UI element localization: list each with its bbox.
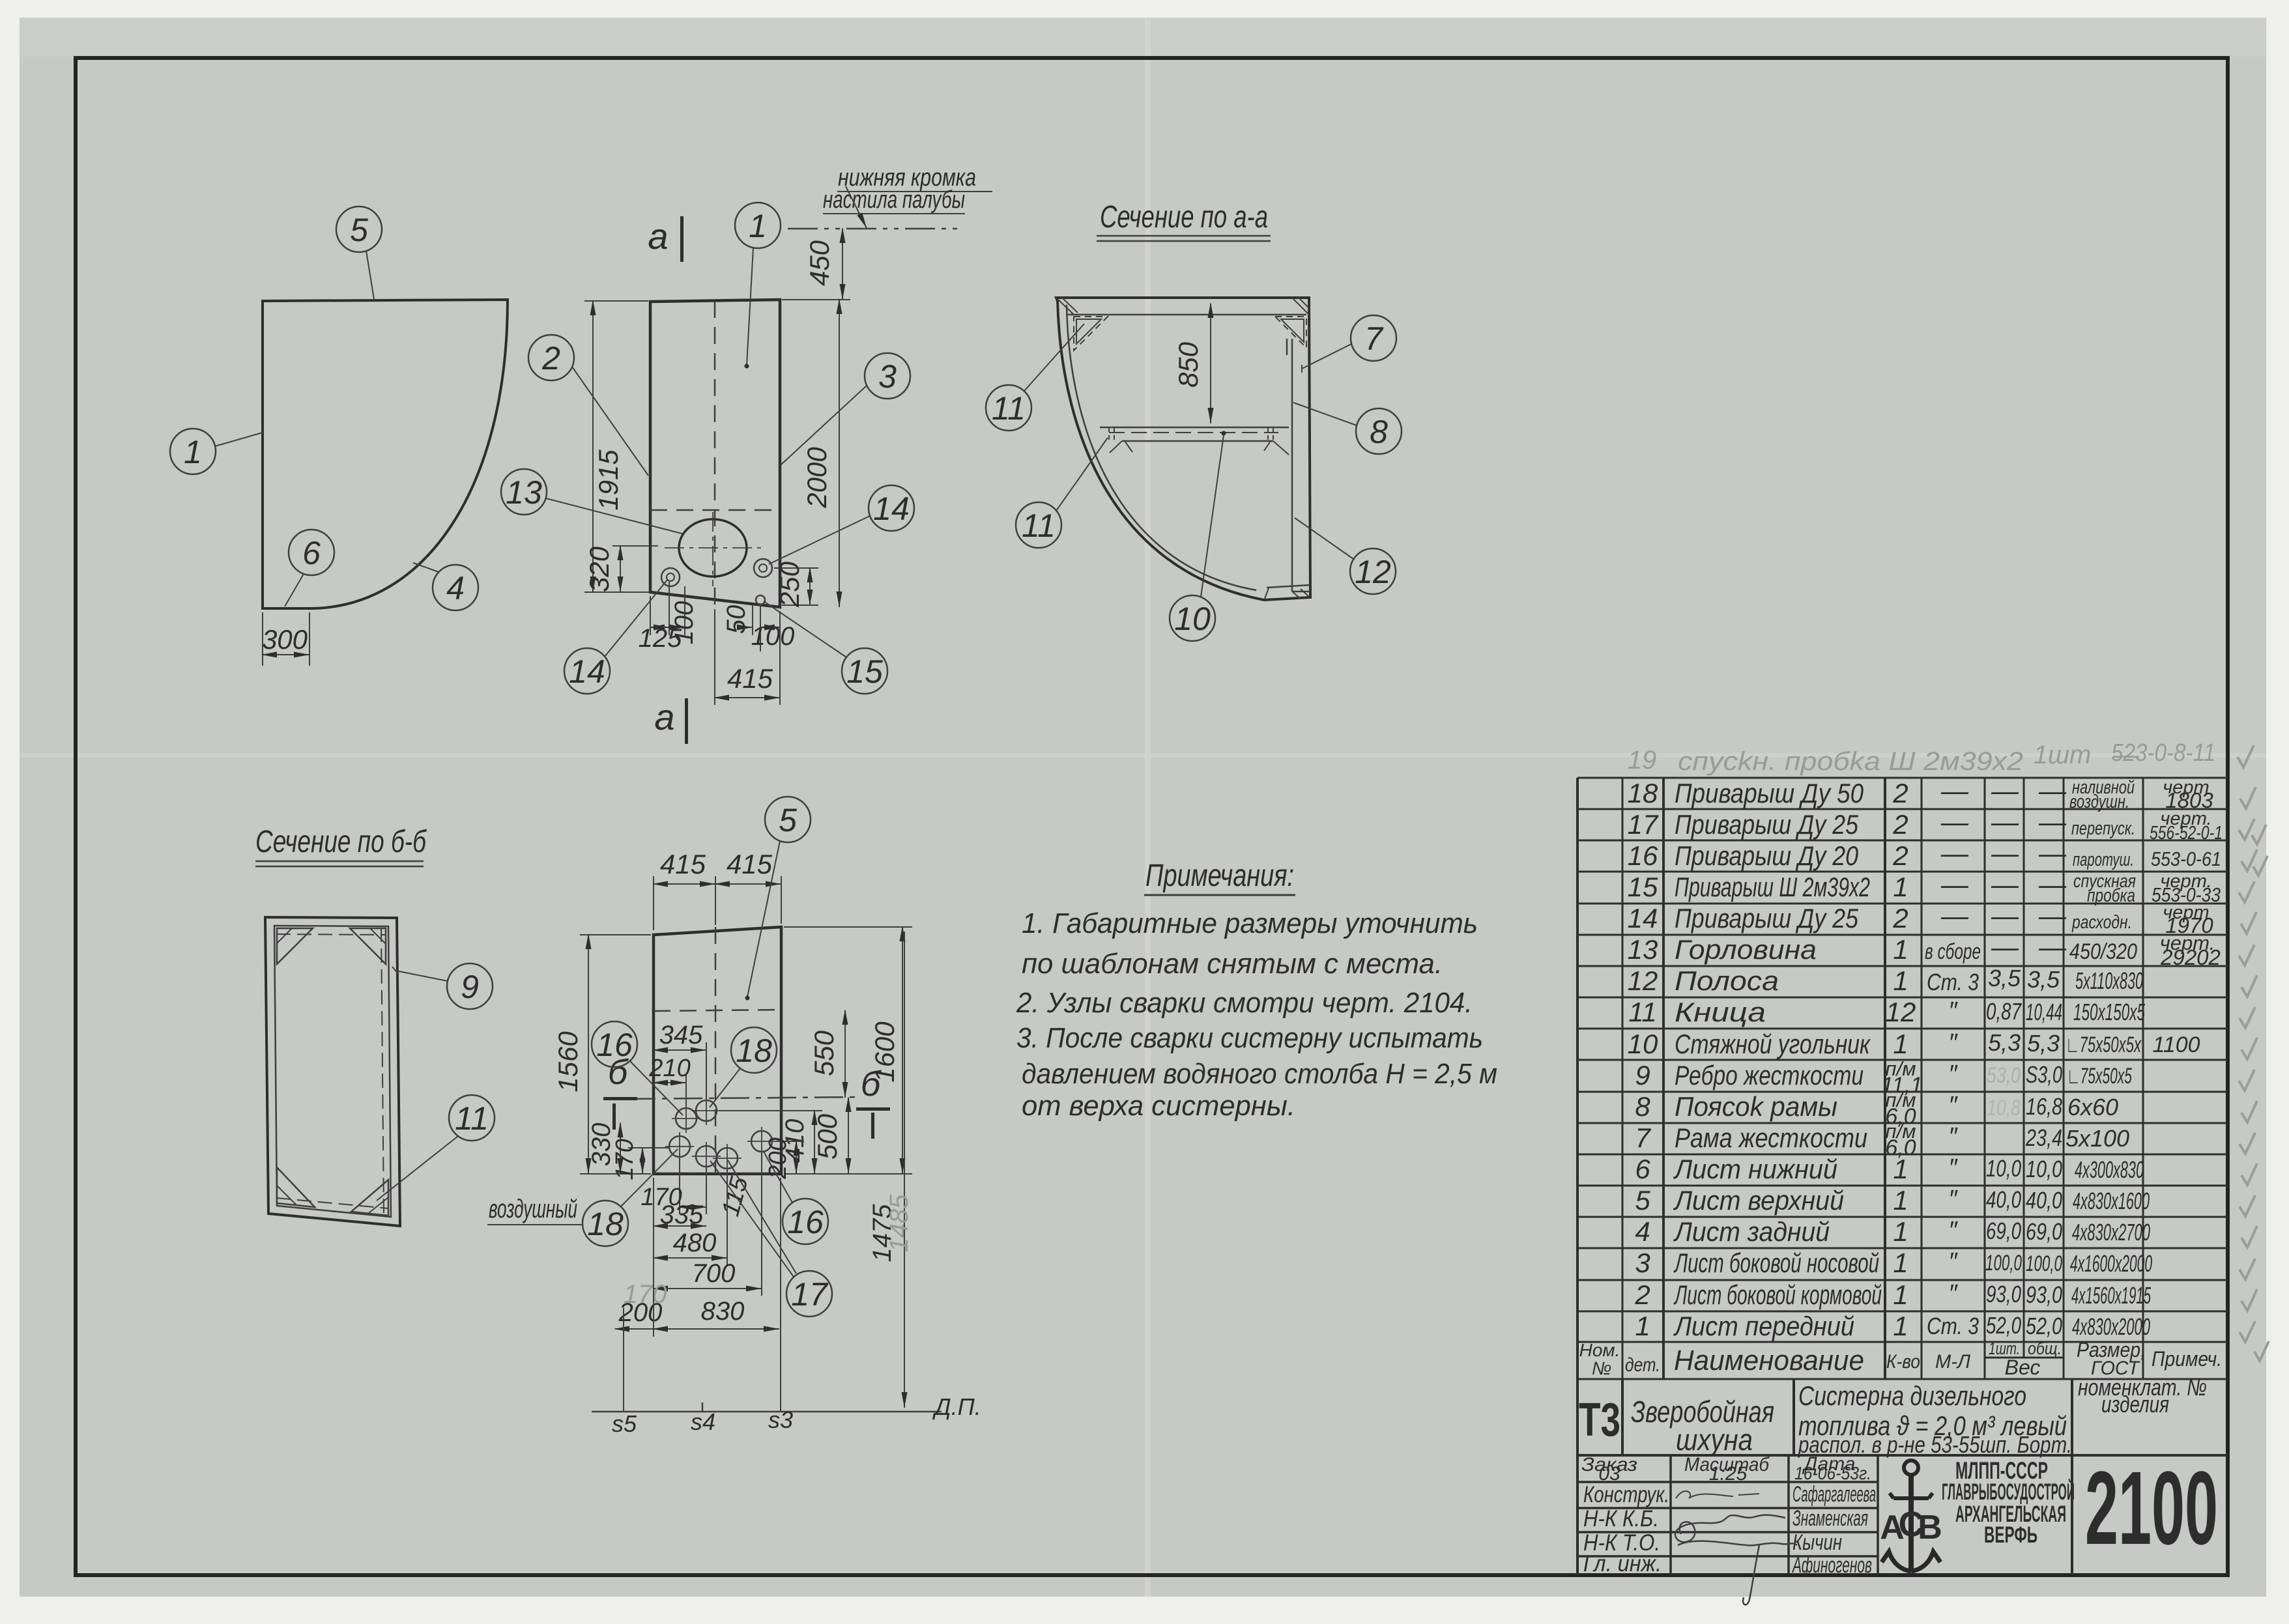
svg-text:16-06-53г.: 16-06-53г. (1794, 1463, 1871, 1483)
svg-text:523-0-8-11: 523-0-8-11 (2111, 739, 2215, 767)
svg-text:Поясоk рамы: Поясоk рамы (1675, 1091, 1837, 1122)
svg-text:3,5: 3,5 (1988, 965, 2021, 991)
svg-text:—: — (1991, 838, 2019, 868)
svg-text:Знаменская: Знаменская (1792, 1506, 1868, 1531)
svg-text:Лист боковой кормовой: Лист боковой кормовой (1673, 1279, 1882, 1310)
svg-text:40,0: 40,0 (1986, 1186, 2021, 1213)
svg-text:Афиногенов: Афиногенов (1792, 1553, 1872, 1578)
svg-text:№: № (1592, 1358, 1611, 1378)
svg-text:—: — (1991, 900, 2019, 931)
svg-text:a: a (654, 696, 674, 737)
svg-text:52,0: 52,0 (2026, 1313, 2062, 1339)
svg-text:ВЕРФЬ: ВЕРФЬ (1984, 1522, 2037, 1548)
svg-text:∟75х50х5: ∟75х50х5 (2067, 1064, 2132, 1089)
svg-text:—: — (1940, 900, 1969, 931)
svg-text:556-52-0-1: 556-52-0-1 (2150, 823, 2223, 844)
svg-text:18: 18 (587, 1206, 624, 1242)
svg-text:11: 11 (455, 1100, 489, 1137)
svg-text:14: 14 (1628, 903, 1658, 933)
svg-text:100,0: 100,0 (1985, 1251, 2022, 1275)
svg-text:s4: s4 (691, 1408, 715, 1435)
svg-text:Примечания:: Примечания: (1145, 859, 1294, 893)
svg-text:Ном.: Ном. (1579, 1340, 1620, 1360)
svg-text:9: 9 (1635, 1060, 1650, 1090)
svg-text:воздушный: воздушный (489, 1195, 577, 1223)
svg-text:″: ″ (1948, 1092, 1958, 1119)
svg-text:Гл. инж.: Гл. инж. (1583, 1551, 1662, 1576)
svg-text:5: 5 (1635, 1185, 1650, 1216)
svg-text:10,44: 10,44 (2026, 999, 2062, 1025)
svg-text:Конструк.: Конструк. (1583, 1482, 1669, 1507)
svg-text:830: 830 (701, 1297, 745, 1326)
svg-text:—: — (1991, 869, 2019, 900)
svg-text:Наименование: Наименование (1674, 1345, 1864, 1376)
svg-text:53,0: 53,0 (1987, 1063, 2021, 1088)
svg-text:1: 1 (1893, 1029, 1908, 1059)
svg-text:″: ″ (1948, 1186, 1958, 1213)
svg-text:5: 5 (779, 802, 797, 838)
svg-text:Рама жесткости: Рама жесткости (1675, 1122, 1867, 1153)
svg-text:—: — (2038, 806, 2067, 837)
svg-text:Сечение по б-б: Сечение по б-б (255, 825, 427, 859)
svg-text:1: 1 (184, 434, 202, 470)
svg-text:1: 1 (1893, 872, 1908, 902)
svg-text:—: — (1940, 869, 1969, 900)
svg-text:0,87: 0,87 (1986, 998, 2023, 1025)
svg-text:—: — (1940, 838, 1969, 868)
svg-text:2. Узлы сварки смотри черт. 21: 2. Узлы сварки смотри черт. 2104. (1016, 987, 1473, 1019)
svg-text:″: ″ (1948, 1061, 1958, 1088)
svg-text:10: 10 (1174, 601, 1211, 637)
svg-text:2: 2 (1892, 809, 1908, 840)
svg-text:Лист задний: Лист задний (1673, 1216, 1830, 1247)
svg-text:16: 16 (1628, 840, 1658, 871)
svg-text:11: 11 (1022, 507, 1056, 544)
svg-text:2: 2 (1634, 1279, 1650, 1310)
svg-text:1: 1 (1893, 965, 1908, 996)
svg-text:93,0: 93,0 (2026, 1281, 2062, 1308)
svg-text:по шаблонам снятым с места.: по шаблонам снятым с места. (1022, 948, 1443, 980)
svg-text:Примеч.: Примеч. (2152, 1347, 2222, 1371)
svg-text:2: 2 (1892, 778, 1908, 808)
svg-text:Приварыш Ду 20: Приварыш Ду 20 (1675, 840, 1859, 871)
svg-text:100,0: 100,0 (2026, 1251, 2062, 1276)
svg-text:16: 16 (787, 1204, 824, 1240)
svg-text:—: — (2038, 775, 2067, 806)
svg-text:16: 16 (596, 1027, 633, 1063)
svg-text:6х60: 6х60 (2067, 1094, 2118, 1120)
svg-text:3,5: 3,5 (2027, 966, 2060, 993)
svg-text:8: 8 (1635, 1091, 1650, 1122)
svg-text:93,0: 93,0 (1986, 1281, 2021, 1307)
svg-text:1560: 1560 (553, 1031, 583, 1092)
svg-text:Ст. 3: Ст. 3 (1927, 969, 1979, 995)
svg-text:11: 11 (992, 390, 1026, 427)
svg-text:4х1560х1915: 4х1560х1915 (2071, 1282, 2152, 1309)
svg-text:850: 850 (1173, 341, 1203, 388)
svg-text:16,8: 16,8 (2026, 1093, 2062, 1120)
svg-text:a: a (648, 216, 668, 257)
svg-text:—: — (1940, 806, 1969, 837)
svg-text:553-0-61: 553-0-61 (2151, 848, 2221, 870)
svg-text:5: 5 (350, 212, 368, 248)
svg-text:4: 4 (1635, 1216, 1650, 1247)
svg-text:50: 50 (722, 605, 751, 634)
svg-text:10: 10 (1628, 1029, 1658, 1059)
svg-text:69,0: 69,0 (2026, 1218, 2062, 1245)
svg-text:8: 8 (1370, 414, 1388, 450)
svg-text:Сафаргалеева: Сафаргалеева (1792, 1482, 1876, 1507)
svg-text:Д.П.: Д.П. (932, 1393, 981, 1420)
svg-text:4х1600х2000: 4х1600х2000 (2070, 1250, 2152, 1277)
svg-text:6: 6 (1635, 1154, 1650, 1184)
svg-text:S3,0: S3,0 (2026, 1061, 2062, 1088)
svg-text:1: 1 (1893, 1154, 1908, 1184)
svg-text:1: 1 (1893, 1247, 1908, 1278)
svg-text:1100: 1100 (2152, 1033, 2200, 1057)
svg-text:∟75х50х5х: ∟75х50х5х (2066, 1033, 2142, 1057)
svg-text:480: 480 (673, 1229, 717, 1257)
svg-text:Кница: Кница (1675, 997, 1766, 1027)
svg-text:1: 1 (1635, 1311, 1650, 1341)
svg-text:Т3: Т3 (1579, 1394, 1620, 1446)
svg-text:″: ″ (1948, 1280, 1958, 1307)
svg-text:19: 19 (1628, 746, 1657, 775)
svg-text:52,0: 52,0 (1986, 1312, 2021, 1339)
svg-text:150х150х5: 150х150х5 (2073, 999, 2146, 1025)
svg-text:спусkн. пробkа Ш 2м39х2: спусkн. пробkа Ш 2м39х2 (1678, 747, 2023, 776)
svg-text:4х830х2700: 4х830х2700 (2072, 1219, 2150, 1246)
svg-text:17: 17 (791, 1276, 829, 1313)
svg-text:5х100: 5х100 (2066, 1125, 2129, 1152)
svg-text:13: 13 (1628, 934, 1658, 965)
svg-text:100: 100 (670, 601, 698, 645)
svg-text:23,4: 23,4 (2025, 1124, 2062, 1151)
svg-text:7: 7 (1364, 321, 1384, 357)
svg-text:2: 2 (541, 340, 560, 377)
svg-text:1: 1 (1893, 1279, 1908, 1310)
svg-text:500: 500 (812, 1113, 842, 1160)
svg-text:4: 4 (446, 570, 465, 606)
svg-text:1915: 1915 (593, 449, 624, 511)
svg-text:3. После сварки систерну исп: 3. После сварки систерну испытать (1016, 1022, 1483, 1054)
svg-text:Стяжной угольник: Стяжной угольник (1675, 1029, 1871, 1059)
svg-text:335: 335 (660, 1201, 704, 1229)
svg-text:3: 3 (878, 358, 897, 395)
svg-text:Ребро жесткости: Ребро жесткости (1675, 1060, 1864, 1090)
svg-text:450/320: 450/320 (2069, 939, 2137, 964)
svg-text:ГЛАВРЫБОСУДОСТРОЙ: ГЛАВРЫБОСУДОСТРОЙ (1942, 1479, 2075, 1505)
svg-text:Лист передний: Лист передний (1673, 1311, 1854, 1341)
svg-text:М-Л: М-Л (1935, 1351, 1970, 1373)
svg-text:Полоса: Полоса (1675, 965, 1779, 996)
svg-text:10,0: 10,0 (2026, 1156, 2062, 1182)
svg-text:1: 1 (1893, 1185, 1908, 1216)
svg-text:29202: 29202 (2160, 945, 2221, 969)
svg-text:—: — (2038, 900, 2067, 931)
svg-text:давлением водяного столба Н =: давлением водяного столба Н = 2,5 м (1022, 1058, 1497, 1090)
svg-text:Приварыш Ду 25: Приварыш Ду 25 (1675, 809, 1859, 840)
svg-text:от верха систерны.: от верха систерны. (1022, 1090, 1295, 1122)
svg-text:″: ″ (1948, 997, 1958, 1025)
svg-text:40,0: 40,0 (2026, 1187, 2062, 1214)
svg-text:дет.: дет. (1625, 1354, 1660, 1376)
svg-text:10,0: 10,0 (1986, 1155, 2021, 1182)
svg-text:изделия: изделия (2101, 1391, 2169, 1417)
svg-text:2: 2 (1892, 903, 1908, 933)
svg-text:7: 7 (1635, 1122, 1651, 1153)
svg-text:″: ″ (1948, 1217, 1958, 1244)
svg-text:14: 14 (873, 491, 910, 527)
svg-text:700: 700 (692, 1259, 736, 1288)
svg-text:6: 6 (302, 535, 321, 571)
svg-text:Приварыш Ду 25: Приварыш Ду 25 (1675, 903, 1859, 933)
svg-text:Систерна дизельного: Систерна дизельного (1798, 1380, 2026, 1411)
svg-text:воздушн.: воздушн. (2069, 791, 2129, 812)
svg-text:—: — (2038, 869, 2067, 900)
svg-text:5х110х830: 5х110х830 (2075, 967, 2143, 994)
svg-text:15: 15 (846, 653, 883, 690)
svg-text:—: — (1940, 775, 1969, 806)
svg-text:5,3: 5,3 (2027, 1030, 2060, 1057)
svg-text:550: 550 (809, 1030, 839, 1076)
svg-text:в сборе: в сборе (1925, 939, 1981, 964)
svg-text:Н-К К.Б.: Н-К К.Б. (1583, 1506, 1659, 1531)
svg-text:2100: 2100 (2085, 1449, 2218, 1566)
svg-text:170: 170 (624, 1280, 667, 1309)
svg-text:11: 11 (1628, 997, 1657, 1027)
svg-text:17: 17 (1628, 809, 1659, 840)
svg-text:1:25: 1:25 (1709, 1463, 1748, 1485)
svg-text:1. Габаритные размеры уточнит: 1. Габаритные размеры уточнить (1022, 907, 1478, 939)
svg-text:1600: 1600 (869, 1021, 900, 1083)
svg-text:Лист верхний: Лист верхний (1673, 1185, 1844, 1216)
svg-text:1485: 1485 (885, 1194, 914, 1253)
svg-text:″: ″ (1948, 1154, 1958, 1182)
svg-text:1: 1 (1893, 934, 1908, 965)
svg-text:4х830х2000: 4х830х2000 (2072, 1313, 2150, 1340)
svg-text:1шт: 1шт (2034, 741, 2092, 769)
svg-text:К-во: К-во (1886, 1351, 1920, 1373)
svg-text:415: 415 (727, 849, 773, 879)
svg-text:320: 320 (584, 546, 614, 592)
svg-text:15: 15 (1628, 872, 1658, 902)
svg-text:12: 12 (1355, 554, 1391, 590)
svg-text:18: 18 (736, 1033, 772, 1069)
svg-text:перепуск.: перепуск. (2071, 818, 2135, 839)
svg-text:Приварыш Ду 50: Приварыш Ду 50 (1675, 778, 1864, 808)
svg-text:345: 345 (659, 1021, 703, 1049)
svg-text:9: 9 (461, 969, 479, 1005)
svg-text:шхуна: шхуна (1676, 1423, 1753, 1457)
svg-text:—: — (1991, 806, 2019, 837)
svg-text:″: ″ (1948, 1029, 1958, 1057)
svg-text:415: 415 (660, 849, 706, 879)
svg-text:Лист нижний: Лист нижний (1673, 1154, 1837, 1184)
svg-text:415: 415 (727, 663, 773, 694)
svg-text:12: 12 (1886, 997, 1916, 1027)
svg-text:″: ″ (1948, 1123, 1958, 1150)
svg-text:—: — (1991, 932, 2019, 962)
svg-text:Ст. 3: Ст. 3 (1927, 1313, 1979, 1339)
svg-text:5,3: 5,3 (1988, 1029, 2021, 1056)
svg-text:2: 2 (1892, 840, 1908, 871)
svg-text:210: 210 (648, 1055, 690, 1082)
svg-text:200: 200 (764, 1137, 792, 1179)
svg-text:расходн.: расходн. (2071, 912, 2132, 933)
svg-text:250: 250 (774, 561, 805, 608)
svg-text:пробка: пробка (2087, 885, 2135, 906)
svg-text:s3: s3 (768, 1406, 793, 1433)
svg-text:100: 100 (751, 622, 795, 651)
svg-text:1: 1 (1893, 1311, 1908, 1341)
svg-text:170: 170 (611, 1139, 639, 1180)
svg-text:—: — (1991, 775, 2019, 806)
svg-text:18: 18 (1628, 778, 1658, 808)
svg-text:1: 1 (749, 208, 767, 244)
svg-text:3: 3 (1635, 1247, 1650, 1278)
svg-text:—: — (2038, 932, 2067, 962)
svg-text:В: В (1918, 1509, 1942, 1546)
svg-text:10,8: 10,8 (1987, 1096, 2021, 1120)
svg-text:2000: 2000 (801, 447, 832, 509)
svg-text:настила палубы: настила палубы (823, 186, 965, 214)
svg-text:—: — (2038, 838, 2067, 868)
svg-text:69,0: 69,0 (1986, 1218, 2021, 1244)
svg-text:Сечение по а-а: Сечение по а-а (1100, 200, 1268, 235)
svg-text:Лист боковой носовой: Лист боковой носовой (1673, 1247, 1879, 1278)
svg-text:450: 450 (804, 240, 835, 286)
svg-text:Горловина: Горловина (1675, 934, 1817, 965)
svg-text:Кычин: Кычин (1792, 1530, 1842, 1555)
svg-text:s5: s5 (612, 1410, 637, 1437)
svg-text:300: 300 (262, 624, 308, 655)
svg-text:13: 13 (506, 474, 542, 511)
svg-text:14: 14 (569, 653, 605, 690)
svg-text:Вес: Вес (2005, 1356, 2041, 1379)
svg-text:паротуш.: паротуш. (2073, 849, 2134, 870)
svg-text:4х300х830: 4х300х830 (2075, 1156, 2144, 1183)
svg-text:12: 12 (1628, 965, 1658, 996)
svg-text:Приварыш Ш 2м39х2: Приварыш Ш 2м39х2 (1675, 872, 1870, 902)
svg-text:″: ″ (1948, 1248, 1958, 1275)
svg-text:4х830х1600: 4х830х1600 (2073, 1188, 2150, 1214)
svg-text:1: 1 (1893, 1216, 1908, 1247)
